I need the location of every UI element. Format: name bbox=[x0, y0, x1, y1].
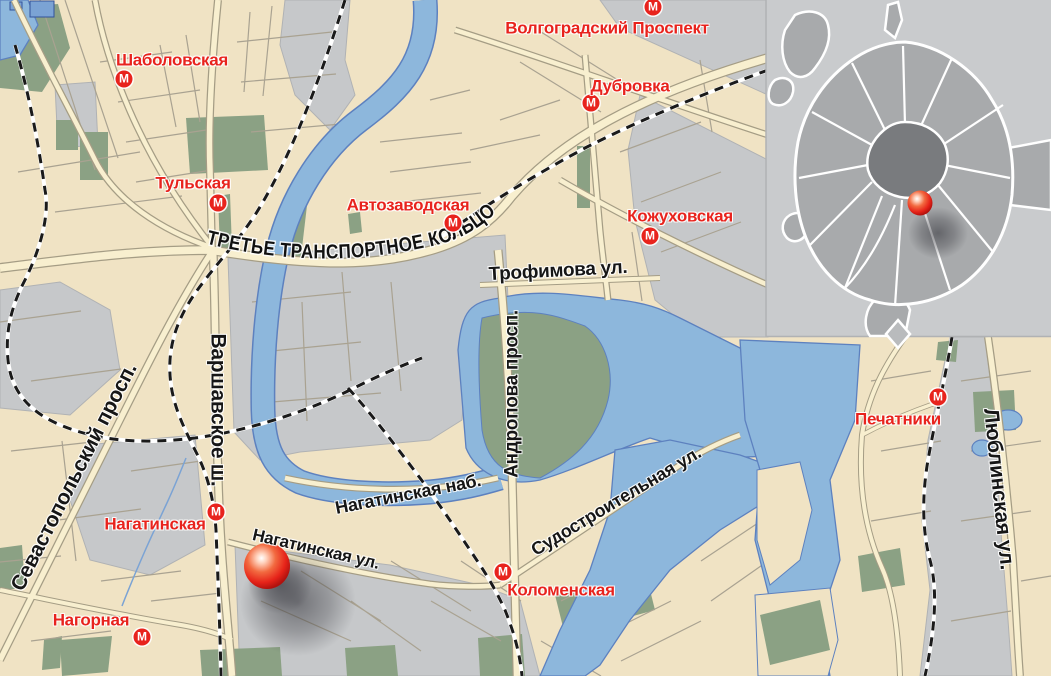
metro-icon: М bbox=[930, 389, 947, 406]
metro-icon: М bbox=[116, 71, 133, 88]
station-label-nagornaya: Нагорная bbox=[53, 612, 130, 629]
station-label-nagatinskaya: Нагатинская bbox=[104, 516, 205, 533]
station-label-tulskaya: Тульская bbox=[155, 175, 230, 192]
street-label-varshavskoe: Варшавское ш. bbox=[208, 334, 229, 487]
station-label-dubrovka: Дубровка bbox=[590, 78, 669, 95]
inset-map[interactable] bbox=[766, 0, 1051, 348]
street-label-andropova: Андропова просп. bbox=[503, 310, 522, 478]
metro-icon: М bbox=[583, 95, 600, 112]
base-map: ТРЕТЬЕ ТРАНСПОРТНОЕ КОЛЬЦО bbox=[0, 0, 1051, 676]
metro-icon: М bbox=[495, 564, 512, 581]
metro-icon: М bbox=[642, 228, 659, 245]
station-label-kozhukhovskaya: Кожуховская bbox=[627, 208, 733, 225]
station-label-avtozavodskaya: Автозаводская bbox=[347, 197, 470, 214]
map-canvas[interactable]: ТРЕТЬЕ ТРАНСПОРТНОЕ КОЛЬЦО bbox=[0, 0, 1051, 676]
metro-icon: М bbox=[210, 195, 227, 212]
metro-icon: М bbox=[445, 215, 462, 232]
metro-icon: М bbox=[208, 504, 225, 521]
metro-icon: М bbox=[134, 629, 151, 646]
station-label-volgogradsky-prospekt: Волгоградский Проспект bbox=[505, 20, 709, 37]
station-label-shabolovskaya: Шаболовская bbox=[116, 52, 228, 69]
station-label-pechatniki: Печатники bbox=[855, 411, 941, 428]
station-label-kolomenskaya: Коломенская bbox=[507, 582, 614, 599]
